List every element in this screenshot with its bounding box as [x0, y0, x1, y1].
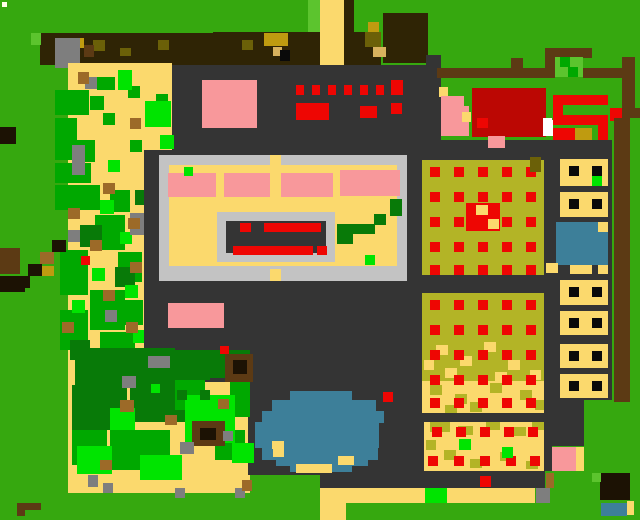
indoor-plant	[390, 199, 402, 216]
pond-sand	[272, 441, 284, 457]
dirt	[130, 262, 142, 273]
crop	[430, 265, 440, 275]
vegetation	[97, 77, 115, 90]
door-north[interactable]	[270, 155, 281, 167]
dirt	[103, 290, 115, 301]
south-path[interactable]	[320, 493, 346, 520]
dirt	[546, 473, 554, 488]
fence	[623, 108, 640, 118]
bed[interactable]	[224, 173, 270, 197]
crate-handle	[569, 351, 579, 361]
crop	[454, 242, 464, 252]
log	[42, 266, 54, 276]
crop	[530, 456, 540, 466]
pig[interactable]	[441, 96, 464, 106]
crop	[502, 375, 512, 385]
dirt	[68, 208, 80, 219]
indoor-plant	[374, 214, 386, 225]
item	[365, 255, 375, 265]
crop	[478, 265, 488, 275]
crop	[478, 300, 488, 310]
farm-building	[545, 400, 584, 446]
vegetation	[130, 140, 142, 152]
field-mix	[424, 360, 434, 370]
red-item	[328, 85, 336, 95]
red-item	[360, 85, 368, 95]
crop	[454, 398, 464, 408]
dirt	[120, 400, 134, 412]
red-item-trail	[553, 128, 575, 140]
crop	[504, 427, 514, 437]
forge-ember	[264, 223, 321, 232]
crop	[430, 167, 440, 177]
item	[184, 167, 193, 176]
crate-detail	[530, 157, 541, 172]
forge-ember	[233, 246, 313, 255]
game-map[interactable]	[0, 0, 640, 520]
crop	[526, 350, 536, 360]
vegetation	[118, 70, 132, 90]
crop	[430, 192, 440, 202]
farm-building	[320, 475, 426, 489]
crop	[430, 398, 440, 408]
crop	[526, 325, 536, 335]
gold-item	[575, 128, 592, 140]
fence	[511, 58, 523, 68]
rock	[180, 442, 194, 454]
crop	[454, 350, 464, 360]
water-edge	[601, 503, 627, 516]
crop	[478, 325, 488, 335]
vegetation	[140, 455, 182, 480]
crop	[456, 427, 466, 437]
red-item-trail	[553, 95, 608, 105]
vegetation	[108, 160, 120, 172]
sand-patch	[598, 222, 608, 232]
red-item	[220, 346, 229, 354]
crate-handle	[592, 199, 602, 209]
vegetation	[55, 185, 100, 210]
crop	[432, 427, 442, 437]
wall-detail	[120, 48, 131, 56]
crop	[454, 325, 464, 335]
grass-highlight	[308, 0, 320, 33]
crop	[526, 398, 536, 408]
crop	[480, 456, 490, 466]
crop	[430, 217, 440, 227]
bush	[568, 67, 578, 77]
vegetation	[72, 300, 85, 313]
rock	[68, 230, 80, 242]
red-item-trail	[598, 115, 608, 140]
crop	[502, 350, 512, 360]
red-item	[81, 256, 90, 265]
red-item	[344, 85, 352, 95]
log	[28, 264, 42, 276]
crop	[454, 300, 464, 310]
crate-handle	[569, 287, 579, 297]
crop	[502, 167, 512, 177]
white-item	[545, 120, 553, 136]
pig[interactable]	[488, 136, 505, 148]
tree-trunk	[233, 360, 247, 374]
vegetation	[90, 96, 104, 110]
crop	[502, 325, 512, 335]
red-item	[312, 85, 320, 95]
crop	[478, 242, 488, 252]
sand-patch	[476, 205, 488, 215]
crate-handle	[592, 318, 602, 328]
field-mix	[430, 385, 442, 395]
red-item	[360, 106, 377, 118]
rock	[536, 488, 550, 503]
red-item	[296, 85, 304, 95]
bed[interactable]	[281, 173, 333, 197]
crate-handle	[569, 199, 579, 209]
tree-trunk	[200, 428, 216, 440]
vegetation	[160, 135, 174, 149]
red-item	[296, 103, 329, 120]
red-item	[391, 80, 403, 95]
tree	[200, 390, 210, 400]
crate-handle	[592, 351, 602, 361]
crop	[430, 375, 440, 385]
vegetation	[125, 285, 138, 298]
crop	[478, 350, 488, 360]
crop	[430, 325, 440, 335]
crop	[430, 350, 440, 360]
crop	[454, 192, 464, 202]
red-item	[477, 118, 488, 128]
dirt	[100, 460, 112, 470]
crop	[478, 375, 488, 385]
crop	[526, 192, 536, 202]
fence	[545, 48, 555, 78]
crop	[502, 217, 512, 227]
dirt	[165, 415, 177, 425]
dirt	[128, 218, 140, 229]
log	[16, 276, 30, 288]
wall-detail	[93, 40, 105, 51]
dirt	[103, 183, 115, 194]
hedge-trunk-strip	[614, 118, 630, 402]
sand-patch	[462, 112, 471, 122]
log	[17, 503, 25, 516]
crop	[454, 167, 464, 177]
bed[interactable]	[168, 173, 216, 197]
crop	[502, 265, 512, 275]
wall-detail	[280, 50, 290, 61]
dirt	[90, 240, 102, 251]
tree	[135, 190, 144, 205]
vegetation	[92, 268, 105, 281]
crop	[526, 375, 536, 385]
dirt	[242, 480, 252, 491]
crop	[526, 265, 536, 275]
wall-detail	[84, 45, 94, 57]
grass-highlight	[31, 33, 41, 45]
crate-handle	[592, 166, 602, 176]
bed[interactable]	[340, 170, 400, 196]
crop	[502, 300, 512, 310]
dirt	[126, 322, 138, 333]
door-south[interactable]	[270, 269, 281, 281]
rock	[122, 376, 136, 388]
rock	[223, 431, 233, 441]
wall-detail	[373, 47, 386, 57]
storage-mat[interactable]	[168, 303, 224, 328]
sprout	[592, 176, 602, 186]
rock	[148, 356, 170, 368]
crop	[502, 398, 512, 408]
rock	[72, 145, 85, 175]
tank-foot	[570, 265, 592, 274]
tank-foot	[546, 263, 558, 273]
wall-detail	[365, 32, 381, 47]
fence	[583, 68, 623, 78]
dirt	[218, 399, 229, 409]
red-item	[376, 85, 384, 95]
red-item-trail	[553, 105, 563, 115]
rock	[105, 310, 117, 322]
map-dot	[2, 2, 7, 7]
crop	[478, 167, 488, 177]
grass-highlight	[592, 473, 601, 482]
storage-mat[interactable]	[552, 447, 576, 471]
crop	[480, 427, 490, 437]
vegetation	[100, 200, 114, 214]
crate-handle	[569, 318, 579, 328]
log	[52, 240, 66, 252]
rock	[175, 488, 185, 498]
bush	[560, 57, 570, 67]
tank-foot	[598, 265, 608, 274]
sand-patch	[627, 501, 634, 515]
crop	[454, 217, 464, 227]
vegetation	[55, 90, 89, 115]
dirt	[78, 72, 89, 84]
rock	[103, 483, 113, 493]
tree	[600, 473, 630, 500]
red-item	[383, 392, 393, 402]
field-mix	[508, 360, 520, 370]
vegetation	[103, 113, 115, 125]
crop	[526, 300, 536, 310]
crop	[454, 265, 464, 275]
tree-canopy	[408, 25, 428, 63]
crop	[428, 456, 438, 466]
crate-handle	[569, 381, 579, 391]
vegetation	[151, 384, 160, 393]
farm-building	[545, 446, 552, 471]
storage-mat[interactable]	[202, 80, 257, 128]
wall-detail	[242, 40, 253, 50]
wall-detail	[158, 40, 169, 50]
pond	[264, 449, 273, 458]
vegetation	[232, 443, 254, 463]
sand-patch	[488, 219, 499, 229]
indoor-plant	[337, 233, 353, 244]
sprout	[502, 447, 513, 458]
crop	[502, 192, 512, 202]
wall-detail	[264, 33, 288, 46]
vegetation	[425, 488, 447, 503]
field-mix	[490, 383, 502, 393]
rock	[88, 475, 98, 487]
crop	[430, 242, 440, 252]
forge-ember	[317, 246, 327, 255]
field-mix	[426, 440, 436, 450]
log	[0, 248, 20, 274]
sand-patch	[576, 447, 584, 471]
red-item	[391, 103, 402, 114]
forge-ember	[240, 223, 251, 232]
crop	[502, 242, 512, 252]
crop	[526, 217, 536, 227]
crop	[454, 456, 464, 466]
vegetation	[145, 101, 171, 127]
crop	[478, 192, 488, 202]
wall-detail	[368, 22, 379, 32]
sprout	[459, 439, 471, 450]
crate-handle	[569, 166, 579, 176]
dirt	[130, 118, 141, 129]
crop	[478, 398, 488, 408]
crate-handle	[592, 287, 602, 297]
crop	[454, 375, 464, 385]
tree	[177, 390, 187, 400]
farm-building	[426, 55, 441, 67]
stump	[0, 127, 16, 144]
north-path[interactable]	[320, 0, 344, 65]
crop	[526, 242, 536, 252]
dirt	[62, 322, 74, 333]
pond-sand	[296, 464, 332, 473]
crate-handle	[592, 381, 602, 391]
log	[40, 252, 54, 264]
barn[interactable]	[472, 88, 546, 137]
crop	[528, 427, 538, 437]
pond-sand	[338, 456, 354, 465]
fence	[437, 68, 553, 78]
crop	[430, 300, 440, 310]
red-item	[480, 476, 491, 487]
field-mix	[535, 400, 544, 410]
